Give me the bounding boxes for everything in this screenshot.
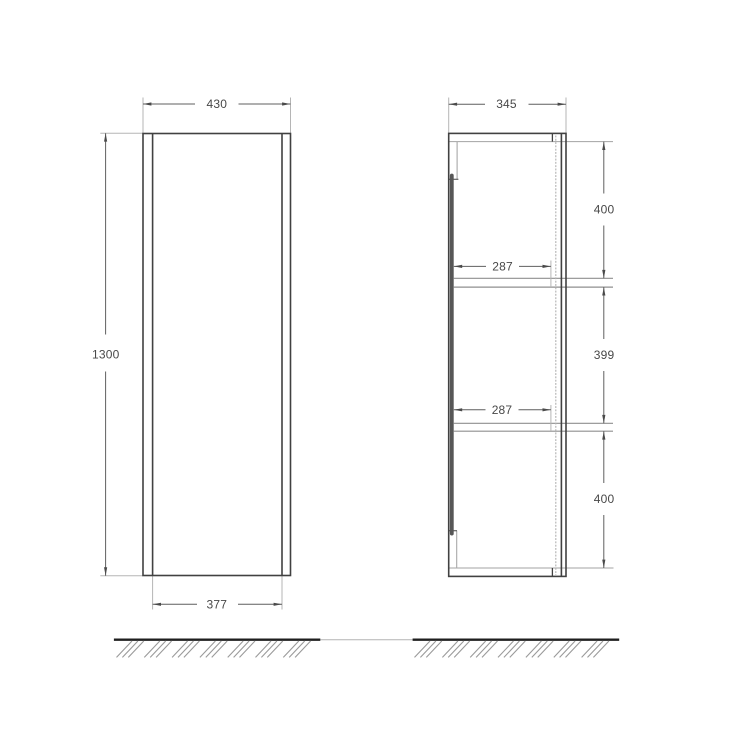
svg-text:400: 400	[594, 203, 615, 217]
svg-text:345: 345	[496, 97, 517, 111]
svg-text:287: 287	[492, 403, 513, 417]
svg-text:430: 430	[206, 97, 227, 111]
svg-text:1300: 1300	[92, 347, 120, 361]
svg-text:399: 399	[594, 348, 615, 362]
svg-text:287: 287	[492, 259, 513, 273]
svg-text:377: 377	[206, 597, 227, 611]
svg-text:400: 400	[594, 492, 615, 506]
